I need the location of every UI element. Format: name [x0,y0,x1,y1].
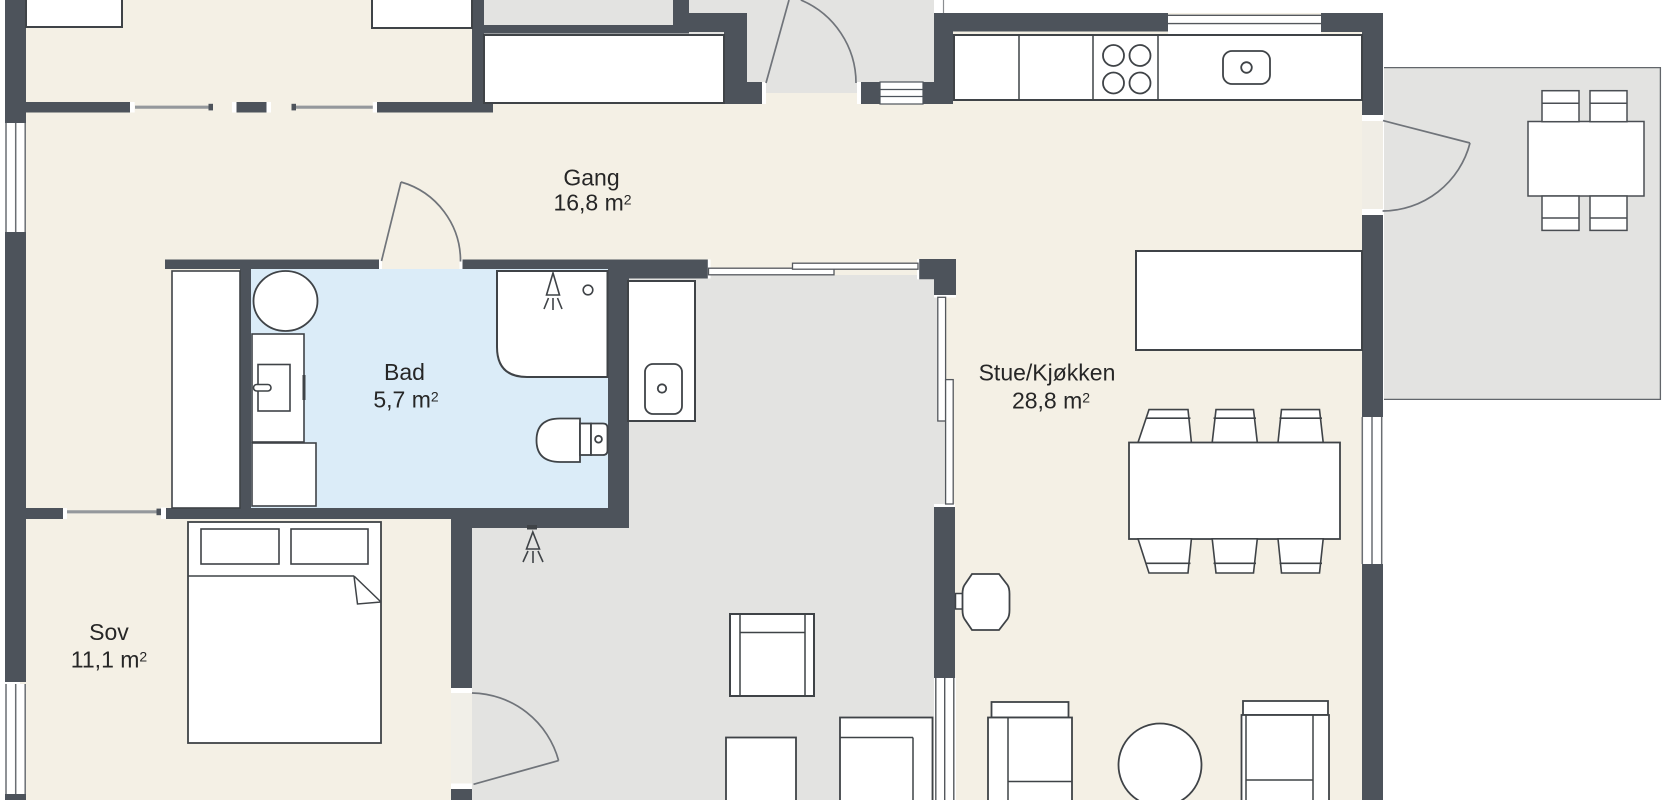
svg-text:Sov: Sov [89,619,129,645]
svg-text:11,1 m2: 11,1 m2 [71,647,148,673]
svg-text:Bad: Bad [384,359,425,385]
svg-text:16,8 m2: 16,8 m2 [553,190,631,216]
svg-text:28,8 m2: 28,8 m2 [1012,388,1090,414]
svg-text:5,7 m2: 5,7 m2 [373,387,439,413]
svg-text:Gang: Gang [563,165,619,191]
svg-text:Stue/Kjøkken: Stue/Kjøkken [979,360,1116,386]
